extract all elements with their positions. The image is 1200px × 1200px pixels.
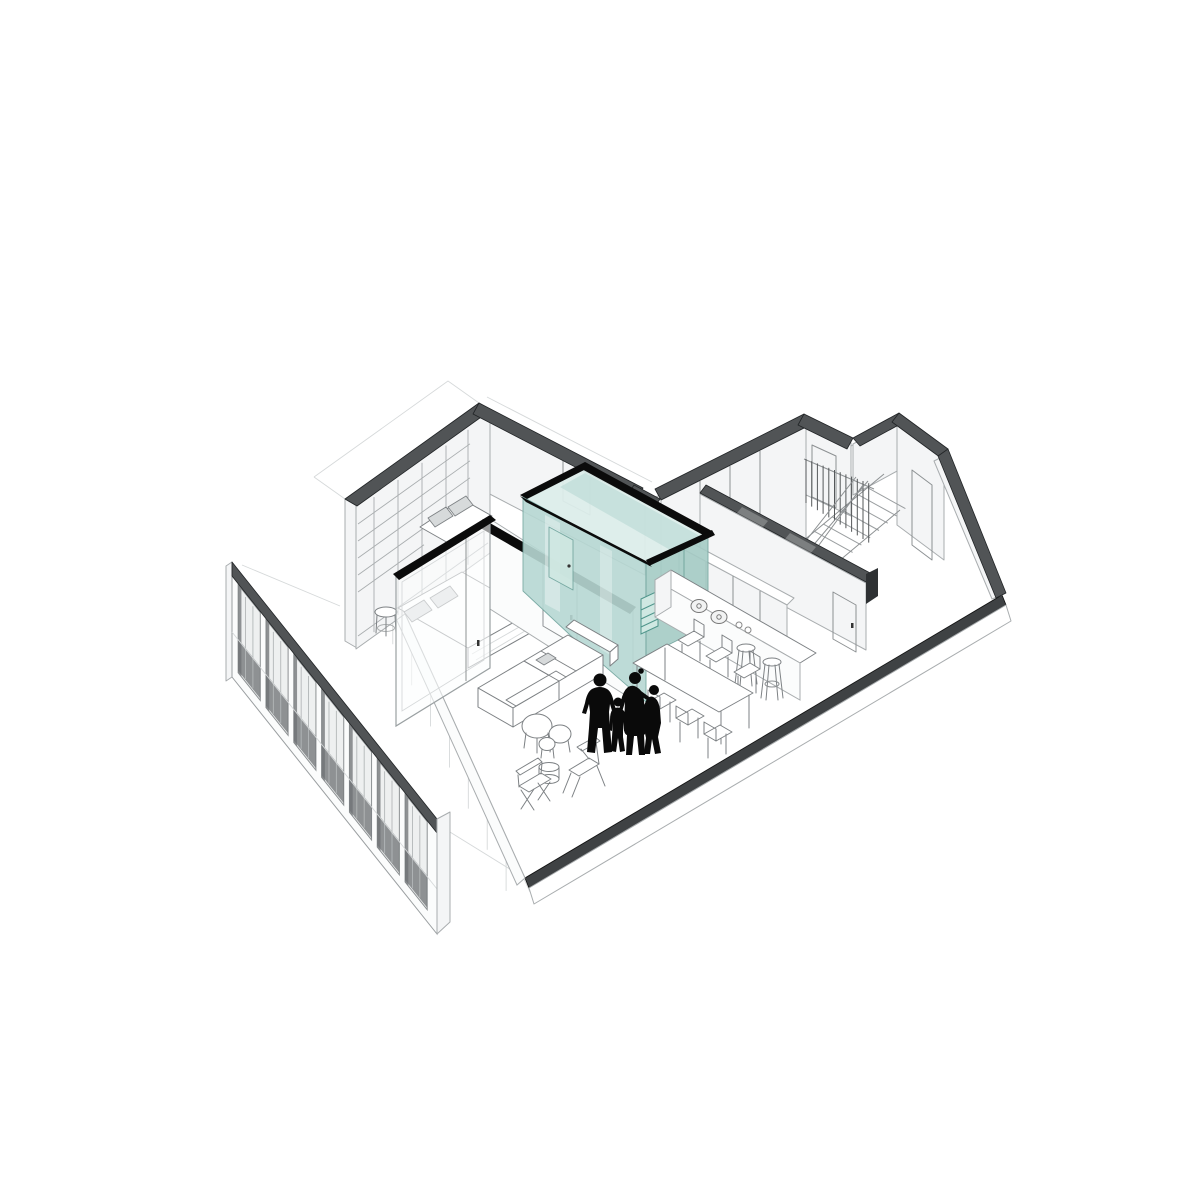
axonometric-drawing xyxy=(0,0,1200,1200)
screenshot-canvas xyxy=(0,0,1200,1200)
nw-wall-end-post xyxy=(345,499,357,648)
glass-door-handle xyxy=(477,640,480,646)
door-handle xyxy=(851,623,854,628)
